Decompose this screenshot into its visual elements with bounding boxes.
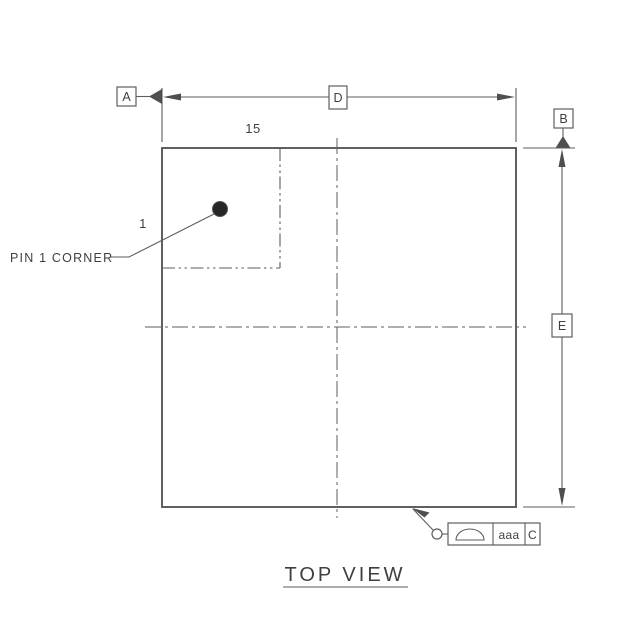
top-view-drawing: PIN 1 CORNER 15 1 D A B E aaa C TOP VIEW (0, 0, 640, 640)
datum-b-triangle-icon (556, 136, 571, 148)
pin1-corner-label: PIN 1 CORNER (10, 251, 113, 265)
dimension-d-arrow-right (497, 94, 515, 101)
feature-control-frame (448, 523, 540, 545)
view-title: TOP VIEW (284, 564, 405, 586)
fcf-leader-circle-icon (432, 529, 442, 539)
pin-first-label: 1 (139, 216, 147, 231)
pin-count-label: 15 (245, 121, 260, 136)
datum-b-label: B (559, 112, 567, 126)
fcf-datum-ref: C (528, 528, 537, 542)
datum-a-label: A (122, 90, 131, 104)
dimension-d-label: D (333, 91, 342, 105)
datum-a-triangle-icon (149, 89, 162, 104)
drawing-sheet: PIN 1 CORNER 15 1 D A B E aaa C TOP VIEW (0, 0, 640, 640)
dimension-e-arrow-bottom (559, 488, 566, 506)
fcf-tolerance-value: aaa (499, 528, 520, 542)
dimension-e-label: E (558, 319, 566, 333)
pin1-indicator-dot (213, 202, 228, 217)
fcf-leader-arrow (412, 508, 430, 518)
dimension-e-arrow-top (559, 149, 566, 167)
dimension-d-arrow-left (163, 94, 181, 101)
